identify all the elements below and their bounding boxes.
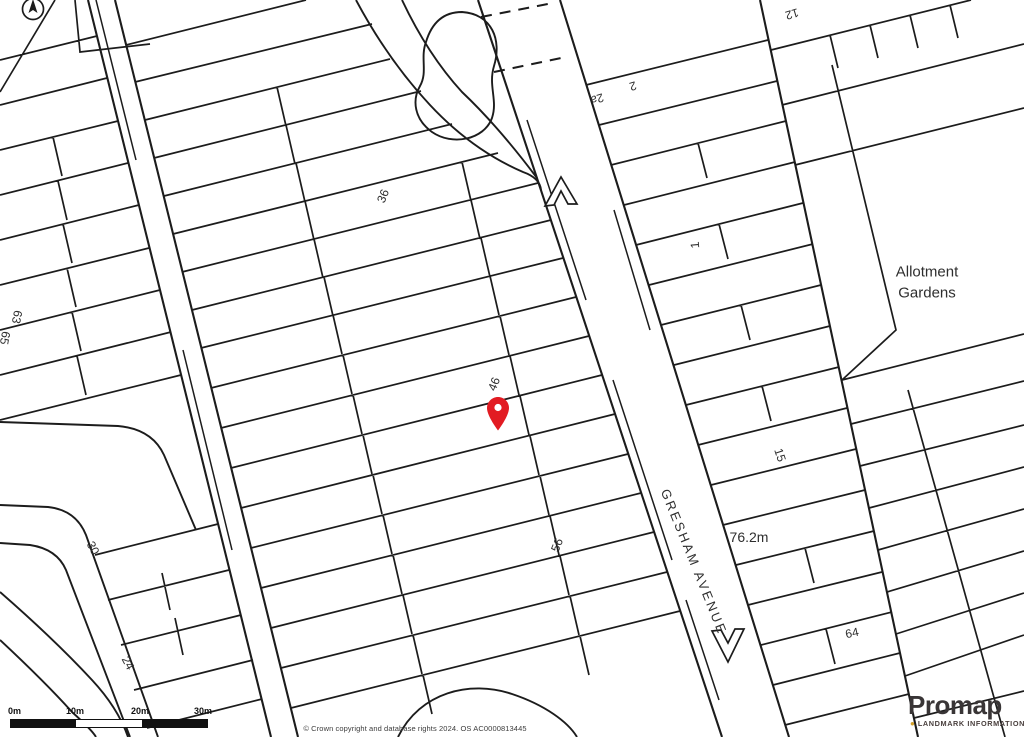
map-label-36: 36 bbox=[375, 188, 391, 205]
map-label-allotment: Allotment bbox=[896, 265, 959, 280]
scale-tick: 20m bbox=[131, 706, 149, 716]
map-label-64: 64 bbox=[844, 626, 860, 641]
promap-logo: Promap ● LANDMARK INFORMATION bbox=[908, 692, 1018, 728]
map-label-1: 1 bbox=[689, 241, 702, 249]
map-label-12: 12 bbox=[784, 6, 800, 21]
map-label-2a: 2a bbox=[589, 91, 605, 106]
landmark-tagline: LANDMARK INFORMATION bbox=[918, 719, 1024, 728]
map-label-15: 15 bbox=[772, 447, 788, 463]
pin-shape bbox=[487, 397, 509, 431]
scale-tick: 30m bbox=[194, 706, 212, 716]
scale-tick: 10m bbox=[66, 706, 84, 716]
map-label-63: 63 bbox=[10, 309, 24, 324]
map-label-gardens: Gardens bbox=[898, 286, 956, 301]
map-label-56: 56 bbox=[549, 537, 565, 554]
map-labels: 364656636530241512a2126476.2mGRESHAM AVE… bbox=[0, 0, 1024, 737]
map-canvas[interactable]: 364656636530241512a2126476.2mGRESHAM AVE… bbox=[0, 0, 1024, 737]
map-label-46: 46 bbox=[486, 376, 502, 393]
map-label-30: 30 bbox=[85, 539, 102, 556]
map-label-65: 65 bbox=[0, 330, 12, 345]
map-label-24: 24 bbox=[120, 654, 137, 671]
promap-wordmark: Promap bbox=[908, 692, 1018, 718]
map-label-gresham-avenue: GRESHAM AVENUE bbox=[659, 487, 730, 637]
landmark-dot-icon: ● bbox=[910, 720, 915, 728]
pin-hole bbox=[494, 404, 501, 411]
scale-tick: 0m bbox=[8, 706, 21, 716]
map-label-2: 2 bbox=[628, 79, 638, 92]
map-label-76.2m: 76.2m bbox=[730, 530, 769, 544]
copyright-notice: © Crown copyright and database rights 20… bbox=[0, 724, 830, 733]
location-pin-icon bbox=[487, 397, 509, 433]
